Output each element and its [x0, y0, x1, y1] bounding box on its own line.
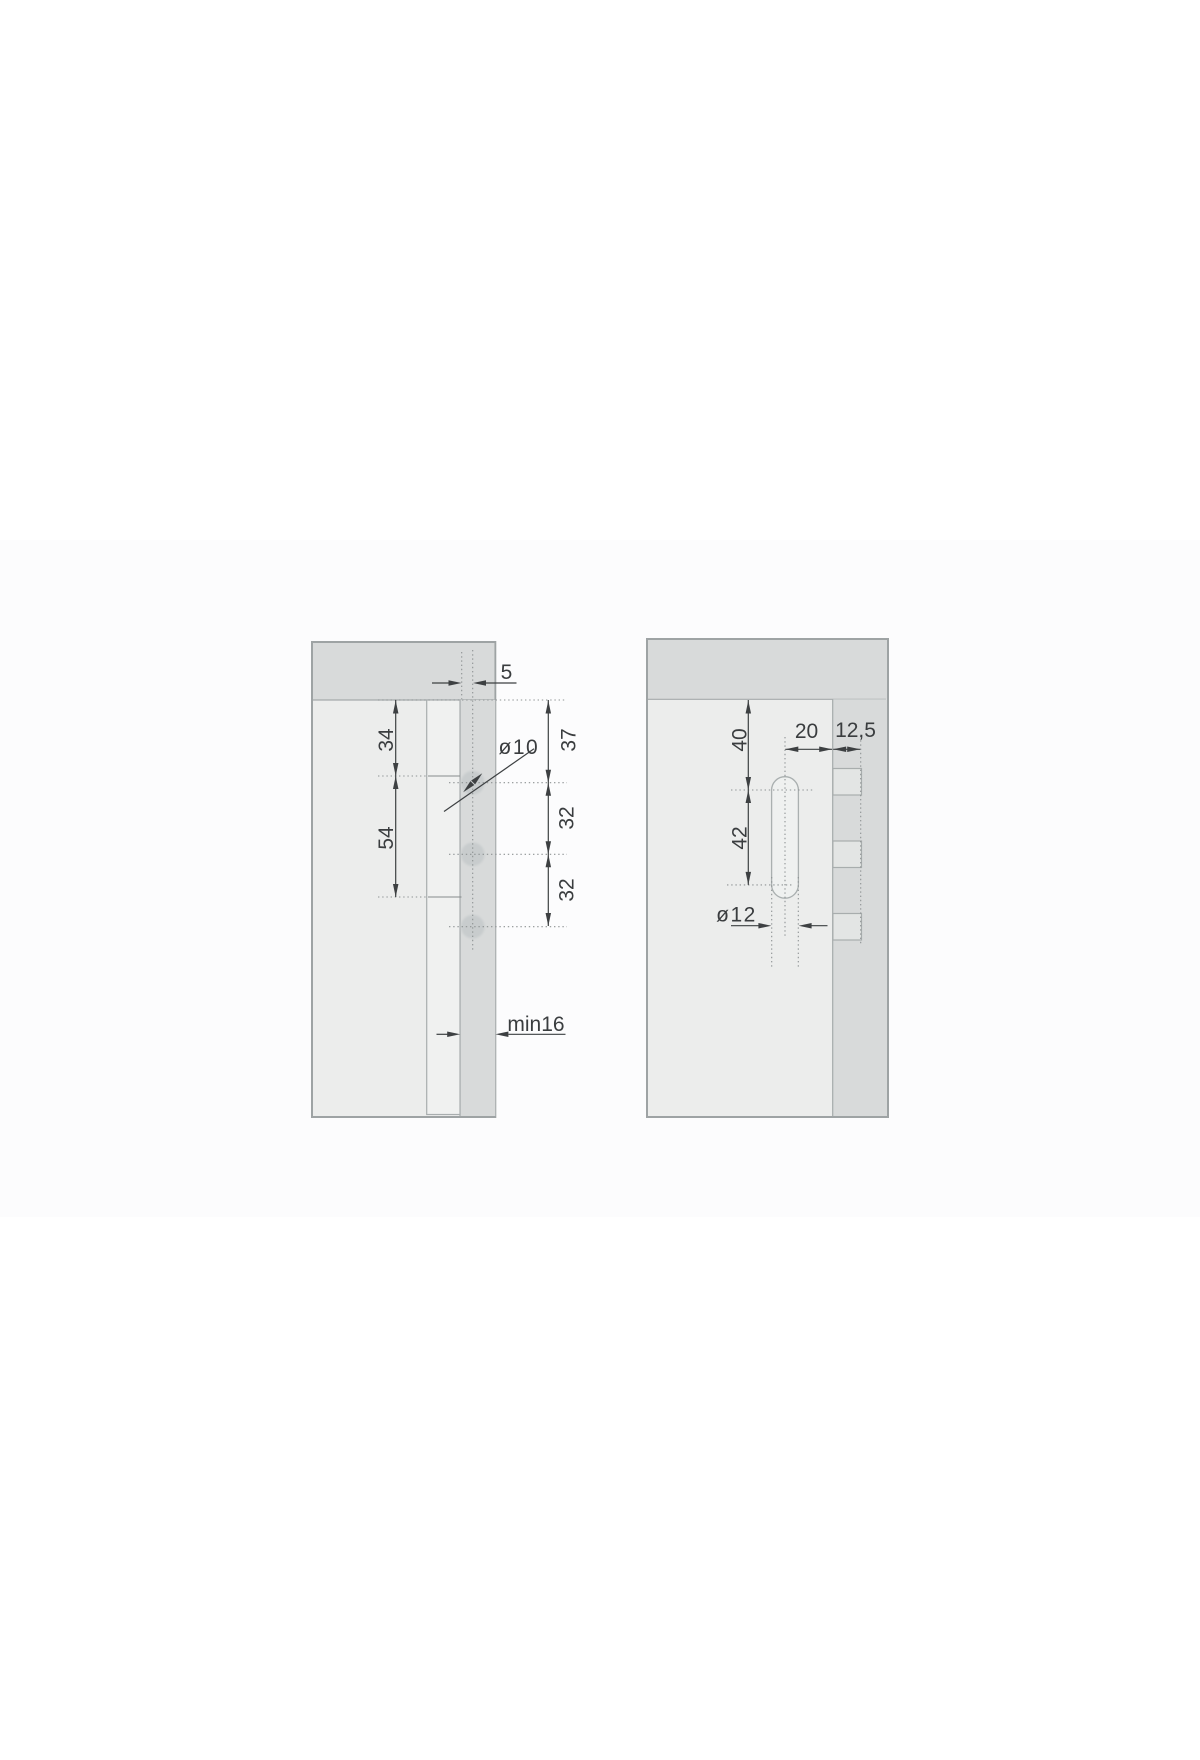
drill-hole-3: [461, 915, 485, 939]
dowel-pin-1: [833, 769, 862, 796]
cabinet-top-panel: [313, 643, 494, 700]
dim-label-12-5: 12,5: [835, 719, 876, 742]
dim-label-37: 37: [558, 728, 581, 751]
dim-label-5: 5: [501, 661, 513, 684]
dim-label-20: 20: [795, 720, 818, 743]
dowel-pin-3: [833, 914, 862, 941]
dowel-pins: [833, 769, 862, 941]
drawing-page: 5 34 54 37 32 32 ø10 min16: [0, 0, 1200, 1760]
front-view: 40 42 20 12,5 ø12: [647, 639, 888, 1117]
dowel-pin-2: [833, 841, 862, 868]
dim-label-32b: 32: [556, 878, 579, 901]
dim-label-40: 40: [729, 728, 752, 751]
dim-label-54: 54: [375, 826, 398, 850]
cabinet-top-panel: [648, 640, 887, 699]
drill-hole-2: [461, 843, 485, 867]
dim-label-dia12: ø12: [716, 904, 757, 927]
dim-label-dia10: ø10: [499, 736, 540, 759]
dim-label-32a: 32: [556, 806, 579, 829]
mounting-panel-strip: [460, 700, 495, 1116]
mounting-rail: [427, 700, 460, 1115]
technical-drawing: 5 34 54 37 32 32 ø10 min16: [0, 0, 1200, 1760]
dim-label-42: 42: [729, 826, 752, 849]
page-band: [0, 540, 1200, 1217]
panel-edge-strip: [833, 699, 887, 1116]
dim-label-34: 34: [375, 728, 398, 752]
dim-label-min16: min16: [507, 1013, 564, 1036]
